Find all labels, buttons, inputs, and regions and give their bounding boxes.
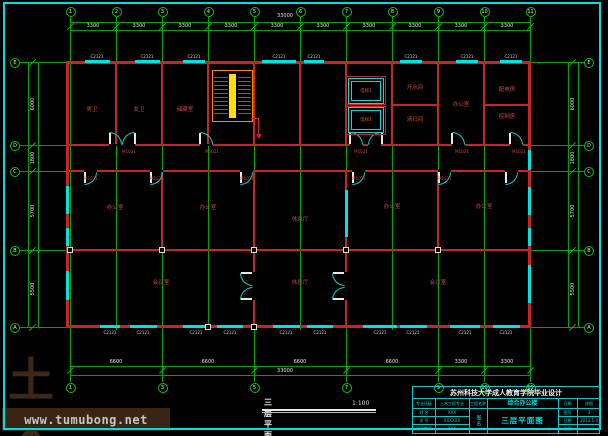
window-tag: C2121: [273, 54, 286, 59]
column-marker: [205, 324, 211, 330]
drawing-scale: 1:100: [352, 400, 369, 407]
axis-bubble: 1: [66, 7, 76, 17]
elevator-label: 电梯1: [348, 78, 384, 104]
window: [500, 60, 522, 63]
window: [400, 325, 427, 328]
door-tag: M1021: [455, 149, 469, 154]
stair-tread: [214, 97, 228, 98]
dim-line: [28, 62, 29, 327]
stair-tread: [214, 81, 228, 82]
stair-tread: [214, 113, 228, 114]
column-marker: [251, 324, 257, 330]
title-block-body: 专业班级 姓 名 学 号 指导教师 土木工程专业 XXX XXXXXX XXX …: [413, 399, 599, 433]
wall: [392, 104, 438, 106]
wall: [483, 62, 485, 145]
stair-tread: [214, 109, 228, 110]
window-tag: C2121: [137, 330, 150, 335]
tb-drawing-name: 三层平面图: [487, 408, 558, 433]
room-label: 办公室: [453, 102, 470, 108]
window: [304, 60, 324, 63]
room-label: 会议室: [430, 280, 447, 286]
axis-bubble: 9: [434, 7, 444, 17]
dim-text: 3300: [124, 23, 154, 29]
room-label: 控制房: [499, 114, 516, 120]
column-marker: [159, 247, 165, 253]
window-tag: C2121: [505, 54, 518, 59]
door-opening: [345, 272, 347, 300]
tb-label-drawing-name: 图名: [469, 408, 487, 433]
door-arc: [332, 273, 345, 286]
window: [528, 150, 531, 170]
dim-text: 3300: [262, 23, 292, 29]
room-label: 配电房: [499, 87, 516, 93]
tb-value-date2: 2013.1.4: [577, 416, 601, 424]
axis-bubble: C: [10, 167, 20, 177]
dim-text: 6600: [193, 359, 223, 365]
window: [345, 190, 348, 237]
window: [100, 325, 120, 328]
elevator-label: 电梯1: [348, 107, 384, 133]
window-tag: C2121: [104, 330, 117, 335]
stair-tread: [214, 89, 228, 90]
tb-value-id: XXXXXX: [435, 416, 469, 424]
tb-label-id: 学 号: [413, 416, 435, 424]
window: [85, 60, 110, 63]
door-leaf: [241, 298, 252, 300]
room-label: 休息厅: [292, 217, 309, 223]
door-tag: M1021: [84, 176, 98, 181]
drawing-title: 三层平面图: [264, 397, 275, 436]
dim-text: 6000: [570, 92, 576, 116]
door-leaf: [241, 272, 252, 274]
stair-tread: [238, 113, 251, 114]
axis-bubble: A: [10, 323, 20, 333]
stair-tread: [214, 101, 228, 102]
stair-rail: [229, 74, 236, 118]
axis-bubble: D: [10, 141, 20, 151]
dim-text: 6000: [30, 92, 36, 116]
axis-bubble: 3: [158, 383, 168, 393]
axis-bubble: C: [584, 167, 594, 177]
axis-bubble: 10: [480, 7, 490, 17]
window-tag: C2121: [308, 54, 321, 59]
wall: [161, 62, 163, 145]
tb-label-sheet: 图号: [558, 408, 577, 416]
room-label: 休息厅: [292, 280, 309, 286]
window-tag: C2121: [500, 330, 513, 335]
column-marker: [67, 247, 73, 253]
dim-text: 3300: [78, 23, 108, 29]
room-label: 会议室: [153, 280, 170, 286]
window: [135, 60, 160, 63]
tb-label-class: 专业班级: [413, 399, 435, 408]
stair-tread: [214, 77, 228, 78]
wall: [253, 62, 255, 145]
dim-text: 6600: [101, 359, 131, 365]
tb-project-name: 综合办公楼: [487, 399, 558, 408]
room-label: 办公室: [384, 204, 401, 210]
dim-text: 3300: [492, 23, 522, 29]
title-underline-thick: [262, 409, 376, 411]
room-label: 清扫间: [407, 117, 424, 123]
wall: [391, 62, 393, 145]
floor-plan: 3300330033003300330033003300330033003300…: [0, 0, 608, 436]
dim-text: 3300: [170, 23, 200, 29]
window-tag: C2121: [280, 330, 293, 335]
window: [450, 325, 480, 328]
dim-text: 3300: [492, 359, 522, 365]
dim-line: [70, 366, 530, 367]
window: [66, 228, 69, 246]
drawing-canvas: 土木帮 www.tumubong.net 3300330033003300330…: [0, 0, 608, 436]
wall: [161, 172, 163, 250]
axis-bubble: 3: [158, 7, 168, 17]
stair-arrow: [256, 134, 262, 139]
stair-tread: [238, 85, 251, 86]
column-marker: [343, 247, 349, 253]
dim-text: 5500: [570, 277, 576, 301]
room-label: 办公室: [476, 204, 493, 210]
column-marker: [251, 247, 257, 253]
title-underline-thin: [262, 412, 376, 413]
axis-bubble: 5: [250, 7, 260, 17]
window-tag: C2121: [314, 330, 327, 335]
dim-line: [38, 62, 39, 327]
dim-text: 1800: [30, 146, 36, 170]
window: [262, 60, 296, 63]
stair-tread: [238, 105, 251, 106]
room-label: 开水间: [407, 85, 424, 91]
window-tag: C2121: [190, 330, 203, 335]
window-tag: C2121: [374, 330, 387, 335]
dim-text: 3300: [308, 23, 338, 29]
window-tag: C2121: [91, 54, 104, 59]
room-label: 储藏室: [177, 107, 194, 113]
door-tag: M1021: [240, 176, 254, 181]
tb-value-advisor: XXX: [435, 424, 469, 433]
window: [66, 271, 69, 300]
wall: [253, 172, 255, 250]
stair-tread: [238, 81, 251, 82]
dim-line: [578, 62, 579, 327]
door-tag: M1021: [352, 176, 366, 181]
door-leaf: [333, 298, 344, 300]
room-label: 女卫: [133, 107, 144, 113]
axis-bubble: B: [584, 246, 594, 256]
dim-line: [568, 62, 569, 327]
door-arc: [452, 132, 465, 145]
door-leaf: [333, 272, 344, 274]
axis-bubble: 4: [204, 7, 214, 17]
room-label: 男卫: [86, 107, 97, 113]
window-tag: C2121: [188, 54, 201, 59]
dim-line: [70, 30, 530, 31]
door-leaf: [134, 133, 136, 144]
door-tag: M1021: [354, 149, 368, 154]
wall: [484, 104, 530, 106]
door-opening: [253, 272, 255, 300]
axis-bubble: E: [584, 58, 594, 68]
stair-arrow: [258, 118, 259, 135]
tb-value-scale: [577, 424, 601, 433]
axis-bubble: 7: [342, 383, 352, 393]
axis-bubble: D: [584, 141, 594, 151]
wall: [66, 249, 531, 251]
title-block: 苏州科技大学成人教育学院毕业设计 专业班级 姓 名 学 号 指导教师 土木工程专…: [412, 386, 600, 434]
door-tag: M1021: [150, 176, 164, 181]
column-marker: [435, 247, 441, 253]
window: [528, 187, 531, 215]
dim-text: 6600: [377, 359, 407, 365]
window: [493, 325, 520, 328]
dim-text: 1800: [570, 146, 576, 170]
window: [66, 186, 69, 214]
window: [130, 325, 157, 328]
window-tag: C2121: [405, 54, 418, 59]
axis-bubble: 7: [342, 7, 352, 17]
window: [456, 60, 478, 63]
room-label: 办公室: [107, 205, 124, 211]
dim-text: 3300: [446, 359, 476, 365]
dim-text: 5700: [30, 199, 36, 223]
tb-label-advisor: 指导教师: [413, 424, 435, 433]
door-leaf: [509, 133, 511, 144]
axis-bubble: 1: [66, 383, 76, 393]
wall: [437, 62, 439, 145]
axis-bubble: 5: [250, 383, 260, 393]
dim-text-overall: 33000: [265, 368, 305, 374]
axis-bubble: 2: [112, 7, 122, 17]
window-tag: C2121: [407, 330, 420, 335]
window: [183, 60, 205, 63]
stair-tread: [214, 85, 228, 86]
door-tag: M1021: [438, 176, 452, 181]
stair-tread: [238, 97, 251, 98]
window: [273, 325, 300, 328]
axis-bubble: 11: [526, 7, 536, 17]
dim-text: 3300: [446, 23, 476, 29]
stair-tread: [238, 101, 251, 102]
window-tag: C2121: [224, 330, 237, 335]
wall: [115, 62, 117, 145]
dim-text: 5700: [570, 199, 576, 223]
dim-line: [70, 375, 530, 376]
window: [528, 265, 531, 303]
dim-text: 6600: [285, 359, 315, 365]
title-block-header: 苏州科技大学成人教育学院毕业设计: [413, 387, 599, 399]
stair-tread: [214, 93, 228, 94]
tb-label-date2: 日期: [558, 416, 577, 424]
stair-tread: [214, 105, 228, 106]
door-arc: [240, 273, 253, 286]
window-tag: C2121: [461, 54, 474, 59]
axis-bubble: E: [10, 58, 20, 68]
axis-bubble: B: [10, 246, 20, 256]
tb-label-date1: 日期: [558, 399, 577, 408]
door-tag: M1021: [205, 149, 219, 154]
window: [363, 325, 397, 328]
door-leaf: [505, 172, 507, 183]
window-tag: C2121: [141, 54, 154, 59]
room-label: 办公室: [200, 205, 217, 211]
wall: [207, 62, 209, 145]
axis-bubble: A: [584, 323, 594, 333]
window: [528, 228, 531, 246]
stair-tread: [238, 77, 251, 78]
door-arc: [510, 132, 523, 145]
window: [400, 60, 422, 63]
tb-label-scale: 比例: [558, 424, 577, 433]
door-tag: M1021: [512, 149, 526, 154]
tb-value-name: XXX: [435, 408, 469, 416]
window: [307, 325, 333, 328]
tb-label-project: 工程名称: [469, 399, 487, 408]
tb-value-sheet: 3: [577, 408, 601, 416]
tb-value-class: 土木工程专业: [435, 399, 469, 408]
window-tag: C2121: [459, 330, 472, 335]
stair-tread: [238, 93, 251, 94]
door-leaf: [451, 133, 453, 144]
tb-label-name: 姓 名: [413, 408, 435, 416]
wall: [66, 170, 531, 172]
dim-text: 5500: [30, 277, 36, 301]
stair-tread: [238, 109, 251, 110]
wall: [299, 62, 301, 145]
door-arc: [200, 132, 213, 145]
axis-bubble: 8: [388, 7, 398, 17]
tb-value-date1: 成图: [577, 399, 601, 408]
stair-tread: [238, 89, 251, 90]
window: [217, 325, 243, 328]
dim-text: 3300: [354, 23, 384, 29]
axis-bubble: 6: [296, 7, 306, 17]
door-leaf: [109, 133, 111, 144]
dim-text: 3300: [216, 23, 246, 29]
door-leaf: [199, 133, 201, 144]
door-tag: M1021: [122, 149, 136, 154]
dim-text: 3300: [400, 23, 430, 29]
